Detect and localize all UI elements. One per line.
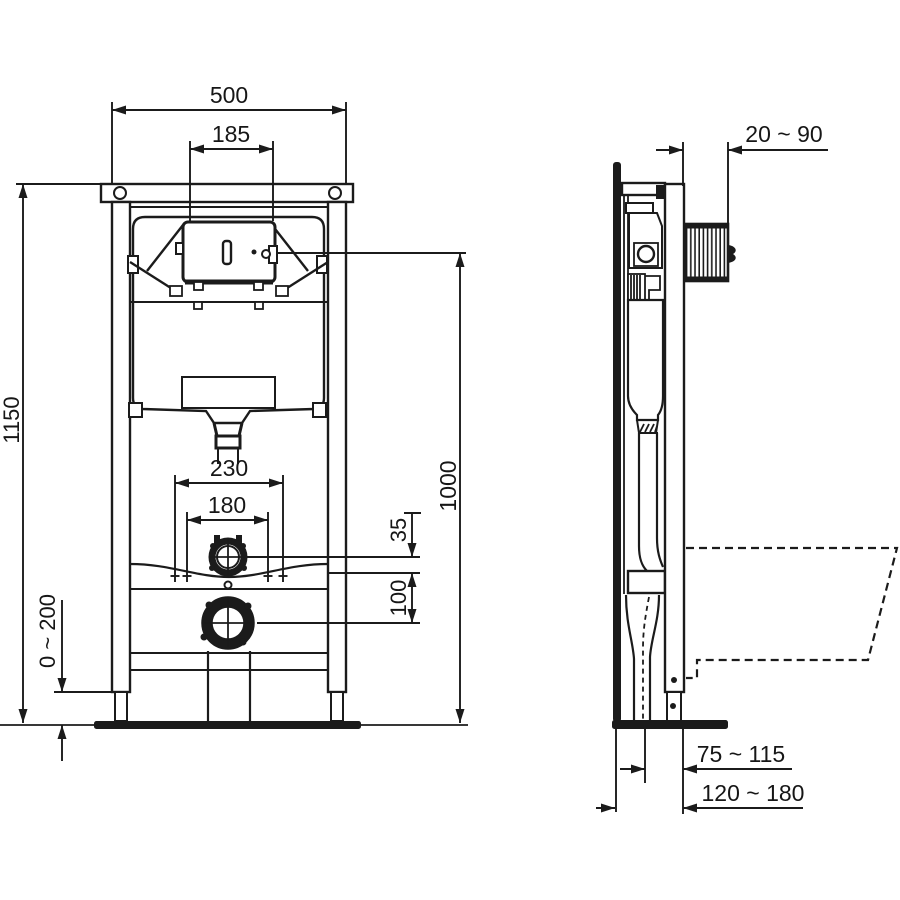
dim-outlet-wall-distance: 120 ~ 180 bbox=[596, 780, 804, 813]
dim-label-120-180: 120 ~ 180 bbox=[702, 780, 805, 806]
flush-plate-housing bbox=[685, 224, 736, 281]
dim-label-75-115: 75 ~ 115 bbox=[697, 741, 785, 767]
yoke-tab-right bbox=[276, 286, 288, 296]
dim-label-500: 500 bbox=[210, 82, 248, 108]
frame-top-bar bbox=[101, 184, 353, 202]
cistern-label-plate bbox=[182, 377, 275, 408]
cistern-tab-left bbox=[129, 403, 142, 417]
connector-lug bbox=[209, 565, 215, 571]
box-lower-tab-right bbox=[254, 282, 263, 290]
installation-drawing: 500 185 1150 0 ~ 200 230 bbox=[0, 0, 900, 900]
recess-hanger-left bbox=[194, 302, 202, 309]
connector-lug bbox=[210, 543, 216, 549]
frame-rail-right bbox=[328, 202, 346, 692]
front-view: 500 185 1150 0 ~ 200 230 bbox=[0, 82, 468, 761]
drain-lug bbox=[240, 639, 247, 646]
drain-connector bbox=[201, 599, 253, 721]
flush-valve-step bbox=[645, 276, 660, 300]
yoke-tab-left bbox=[170, 286, 182, 296]
dim-label-0-200: 0 ~ 200 bbox=[35, 594, 60, 668]
access-box-clip-left bbox=[176, 243, 183, 254]
housing-nub bbox=[728, 245, 736, 263]
dim-label-1000: 1000 bbox=[435, 460, 461, 511]
dim-label-1150: 1150 bbox=[0, 396, 24, 443]
center-pilot-hole bbox=[225, 582, 232, 589]
cistern-lid-side bbox=[626, 203, 653, 213]
drain-bend bbox=[626, 595, 659, 720]
flush-pipe-side bbox=[628, 433, 665, 593]
access-box-clip-circle bbox=[262, 250, 270, 258]
adjustable-foot-right bbox=[331, 692, 343, 721]
front-rail-side bbox=[665, 184, 684, 692]
pipe-bracket bbox=[628, 571, 665, 593]
housing-hatched-block bbox=[685, 224, 728, 281]
bend-inner-line bbox=[650, 595, 659, 720]
bend-outer-line bbox=[626, 595, 634, 720]
connector-lug bbox=[240, 543, 246, 549]
cistern-side-profile bbox=[626, 203, 663, 433]
dim-label-35: 35 bbox=[386, 518, 411, 542]
drain-lug bbox=[245, 603, 252, 610]
drain-lug bbox=[206, 602, 213, 609]
dim-label-180: 180 bbox=[208, 492, 246, 518]
drain-lug bbox=[201, 634, 208, 641]
recess-hanger-right bbox=[255, 302, 263, 309]
top-bar-hole-right bbox=[329, 187, 341, 199]
flush-pipe-front-line bbox=[639, 433, 647, 571]
box-lower-tab-left bbox=[194, 282, 203, 290]
top-bar-hole-left bbox=[114, 187, 126, 199]
flush-rod-slot bbox=[223, 241, 231, 264]
cistern-tab-right bbox=[313, 403, 326, 417]
foot-screw-hole-upper bbox=[671, 677, 677, 683]
connector-lug bbox=[241, 565, 247, 571]
foot-screw-hole-lower bbox=[670, 703, 676, 709]
side-base-plate bbox=[612, 720, 728, 729]
wall-line bbox=[613, 162, 621, 722]
fill-valve-float bbox=[638, 246, 654, 262]
dim-label-185: 185 bbox=[212, 121, 250, 147]
dim-label-230: 230 bbox=[210, 455, 248, 481]
access-box-screw-dot bbox=[252, 250, 257, 255]
dim-label-100: 100 bbox=[386, 580, 411, 617]
flush-pipe-socket bbox=[216, 436, 240, 448]
flush-outlet-funnel bbox=[214, 423, 242, 436]
toilet-bowl-outline bbox=[686, 548, 897, 678]
side-view: 20 ~ 90 75 ~ 115 120 ~ 180 bbox=[596, 121, 897, 814]
dim-label-20-90: 20 ~ 90 bbox=[745, 121, 822, 147]
base-plate bbox=[94, 721, 361, 729]
water-supply-connector bbox=[209, 535, 247, 575]
adjustable-foot-left bbox=[115, 692, 127, 721]
tank-side bbox=[628, 300, 663, 420]
bend-centerline bbox=[643, 597, 649, 720]
dim-foot-adjustment: 0 ~ 200 bbox=[35, 594, 111, 761]
frame-rail-left bbox=[112, 202, 130, 692]
flush-pipe-back-line bbox=[657, 433, 663, 567]
